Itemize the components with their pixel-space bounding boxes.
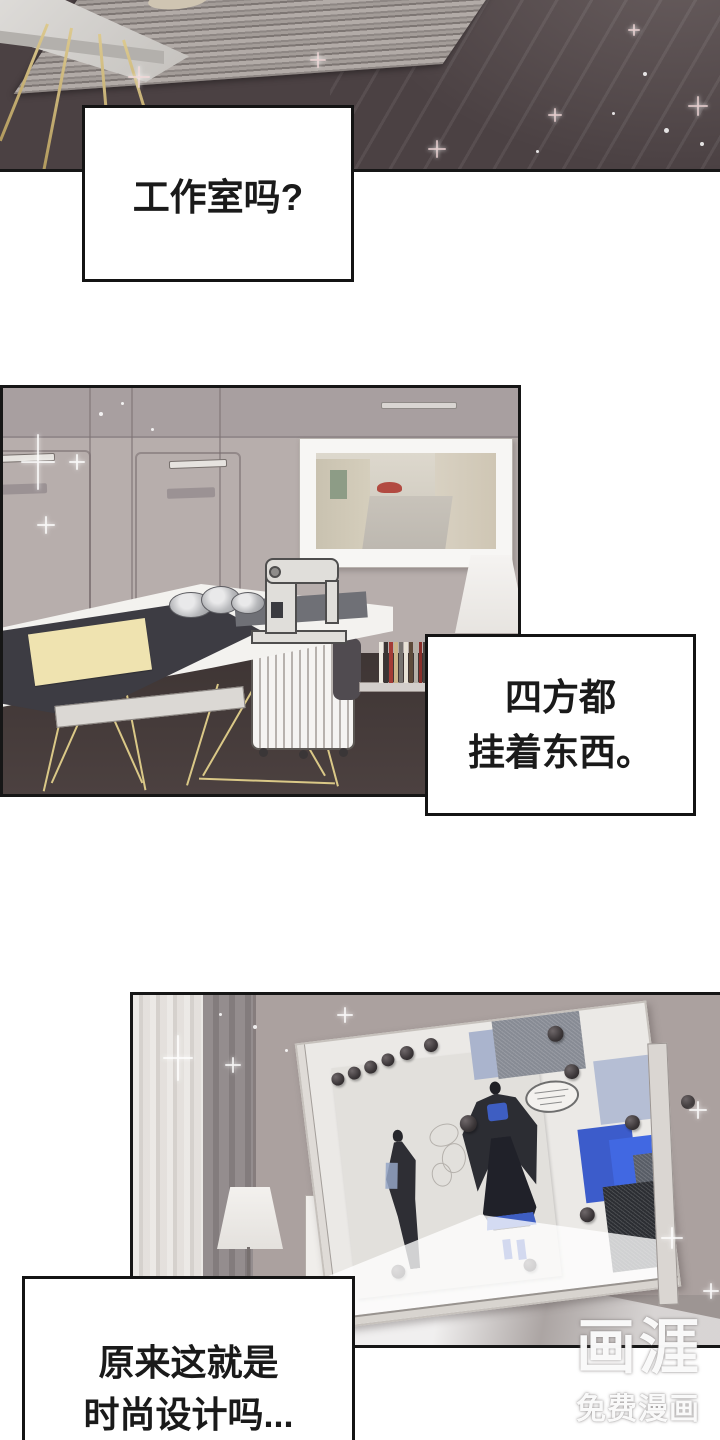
light-dot — [612, 112, 615, 115]
light-dot — [700, 142, 704, 146]
painting-red-awning — [377, 482, 402, 494]
sewing-machine-needle-bar — [325, 580, 339, 624]
narration-text: 原来这就是 — [98, 1337, 278, 1389]
wall-hook-bracket — [167, 487, 215, 499]
grey-curtain — [203, 995, 253, 1303]
sketch-figure-right-head — [489, 1081, 502, 1095]
radiator-caster — [259, 748, 268, 757]
sparkle-icon — [703, 1283, 719, 1299]
book-spine — [384, 642, 387, 683]
sparkle-icon — [689, 1101, 707, 1119]
upper-wall-strip — [3, 388, 518, 438]
sketch-figure-right-blue-top — [487, 1102, 509, 1121]
book-spine — [389, 642, 393, 683]
narration-text: 四方都 — [505, 670, 616, 725]
narration-box-3: 原来这就是 时尚设计吗... — [22, 1276, 355, 1440]
watermark: 画涯 免费漫画 — [576, 1316, 712, 1428]
book-spine — [379, 642, 383, 683]
comic-page: 工作室吗? — [0, 0, 720, 1440]
sparkle-icon — [628, 24, 640, 36]
book-spine — [409, 642, 412, 683]
sparkle-icon — [37, 516, 55, 534]
light-dot — [664, 128, 669, 133]
sparkle-icon — [69, 454, 85, 470]
light-dot — [219, 1013, 222, 1016]
magnet — [579, 1206, 596, 1223]
light-dot — [643, 72, 647, 76]
book-spine — [394, 642, 397, 683]
hanging-garment — [333, 638, 361, 700]
sewing-machine-panel — [271, 602, 283, 618]
painting-shutter — [330, 470, 346, 499]
radiator-caster — [339, 748, 348, 757]
painting-canvas — [316, 453, 496, 549]
sparkle-icon — [337, 1007, 353, 1023]
fabric-pile — [231, 592, 265, 614]
sparkle-icon — [163, 1035, 193, 1081]
light-dot — [285, 1049, 288, 1052]
sparkle-icon — [225, 1057, 241, 1073]
watermark-tagline: 免费漫画 — [576, 1384, 712, 1428]
narration-box-2: 四方都 挂着东西。 — [425, 634, 696, 816]
light-dot — [99, 412, 103, 416]
sparkle-icon — [310, 52, 326, 68]
light-dot — [121, 402, 124, 405]
sparkle-icon — [548, 108, 562, 122]
narration-text: 挂着东西。 — [468, 725, 653, 780]
sparkle-icon — [688, 96, 708, 116]
wall-rail — [381, 402, 457, 409]
sparkle-icon — [661, 1227, 683, 1249]
book-spine — [419, 642, 422, 683]
book-spine — [399, 642, 403, 683]
sewing-machine-wheel — [269, 566, 281, 578]
narration-box-1: 工作室吗? — [82, 105, 354, 282]
radiator-caster — [299, 750, 308, 759]
watermark-logo: 画涯 — [576, 1316, 712, 1380]
narration-text: 时尚设计吗... — [83, 1389, 293, 1440]
sparkle-icon — [21, 434, 55, 490]
magnet — [423, 1037, 439, 1053]
book-spine — [414, 642, 418, 683]
framed-street-painting — [299, 438, 513, 568]
sparkle-icon — [428, 140, 446, 158]
sparkle-icon — [128, 66, 150, 88]
painting-road — [363, 496, 453, 549]
narration-text: 工作室吗? — [133, 167, 304, 221]
sketch-figure-left-accent — [385, 1163, 397, 1189]
light-dot — [151, 428, 154, 431]
book-spine — [404, 642, 408, 683]
light-dot — [253, 1025, 257, 1029]
light-dot — [536, 150, 539, 153]
